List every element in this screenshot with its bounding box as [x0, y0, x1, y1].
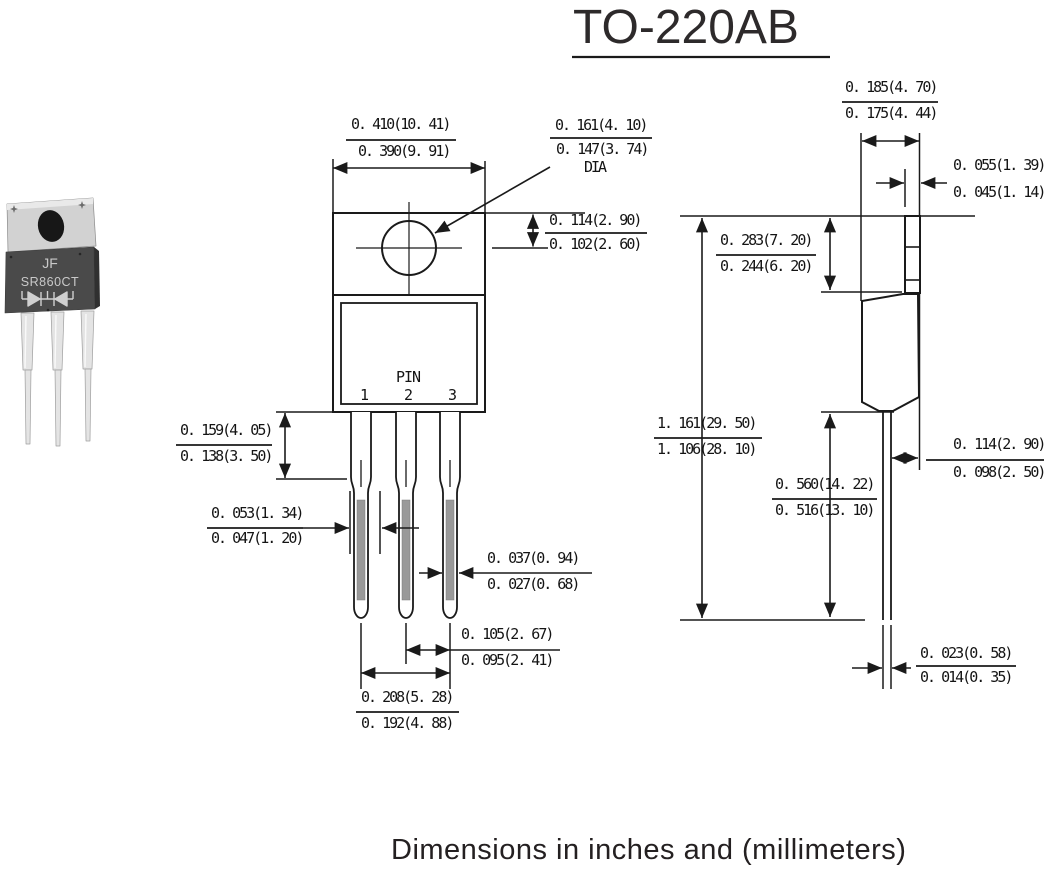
dim-lead-lower-min: 0. 027(0. 68) [487, 577, 578, 592]
dim-overall-max: 1. 161(29. 50) [657, 416, 755, 431]
dim-span-min: 0. 192(4. 88) [361, 716, 452, 731]
dim-lead-thick-min: 0. 014(0. 35) [920, 670, 1011, 685]
units-caption: Dimensions in inches and (millimeters) [391, 834, 906, 867]
dim-hole-dia-min: 0. 147(3. 74) [556, 142, 647, 157]
pin-2-label: 2 [404, 388, 412, 403]
dim-lead-upper-max: 0. 053(1. 34) [211, 506, 302, 521]
dim-hole-offset-min: 0. 102(2. 60) [549, 237, 640, 252]
dim-hole-dia-suffix: DIA [584, 160, 605, 175]
dim-shoulder-max: 0. 159(4. 05) [180, 423, 271, 438]
pin-1-label: 1 [360, 388, 368, 403]
dim-depth-max: 0. 185(4. 70) [845, 80, 936, 95]
datasheet-package-drawing: JF SR860CT [0, 0, 1045, 870]
dim-span-max: 0. 208(5. 28) [361, 690, 452, 705]
dim-overall-min: 1. 106(28. 10) [657, 442, 755, 457]
dim-body-offset-min: 0. 098(2. 50) [953, 465, 1044, 480]
pin-3-label: 3 [448, 388, 456, 403]
dim-front-width-min: 0. 390(9. 91) [358, 144, 449, 159]
dim-body-offset-max: 0. 114(2. 90) [953, 437, 1044, 452]
page-title: TO-220AB [536, 0, 836, 55]
dim-shoulder-min: 0. 138(3. 50) [180, 449, 271, 464]
package-outline-drawing: JF SR860CT [0, 0, 1045, 870]
part-photo-illustration: JF SR860CT [5, 198, 100, 446]
dim-tab-height-min: 0. 244(6. 20) [720, 259, 811, 274]
dim-front-width-max: 0. 410(10. 41) [351, 117, 449, 132]
dim-tab-height-max: 0. 283(7. 20) [720, 233, 811, 248]
dim-hole-dia-max: 0. 161(4. 10) [555, 118, 646, 133]
dim-pitch-max: 0. 105(2. 67) [461, 627, 552, 642]
photo-partnumber-text: SR860CT [21, 275, 79, 289]
dim-tab-thick-min: 0. 045(1. 14) [953, 185, 1044, 200]
dim-lead-lower-max: 0. 037(0. 94) [487, 551, 578, 566]
dim-lead-thick-max: 0. 023(0. 58) [920, 646, 1011, 661]
photo-brand-text: JF [42, 255, 58, 271]
dim-tab-thick-max: 0. 055(1. 39) [953, 158, 1044, 173]
dim-pitch-min: 0. 095(2. 41) [461, 653, 552, 668]
dim-hole-offset-max: 0. 114(2. 90) [549, 213, 640, 228]
dim-lead-upper-min: 0. 047(1. 20) [211, 531, 302, 546]
dim-lead-length-max: 0. 560(14. 22) [775, 477, 873, 492]
dim-depth-min: 0. 175(4. 44) [845, 106, 936, 121]
pin-label: PIN [396, 370, 420, 385]
dim-lead-length-min: 0. 516(13. 10) [775, 503, 873, 518]
